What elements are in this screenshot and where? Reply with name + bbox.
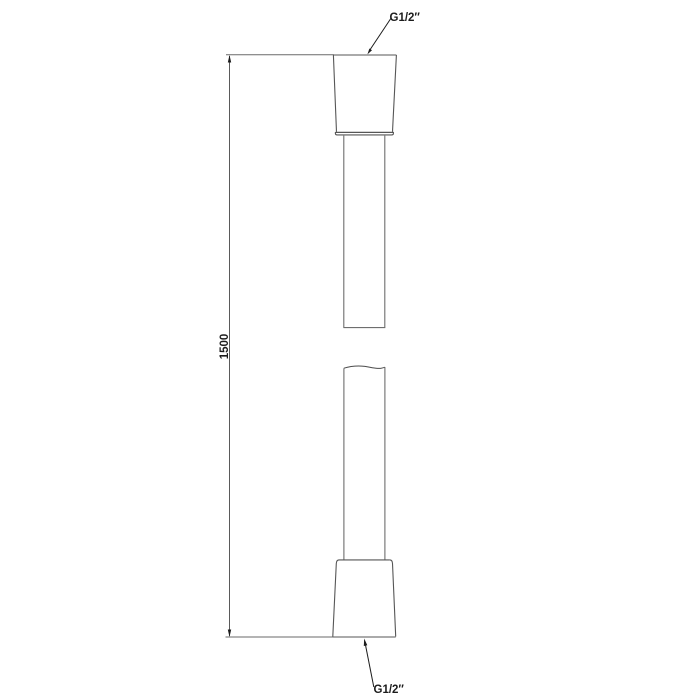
svg-text:G1/2″: G1/2″ [374,684,405,696]
svg-text:1500: 1500 [219,334,231,360]
svg-text:G1/2″: G1/2″ [390,12,421,24]
